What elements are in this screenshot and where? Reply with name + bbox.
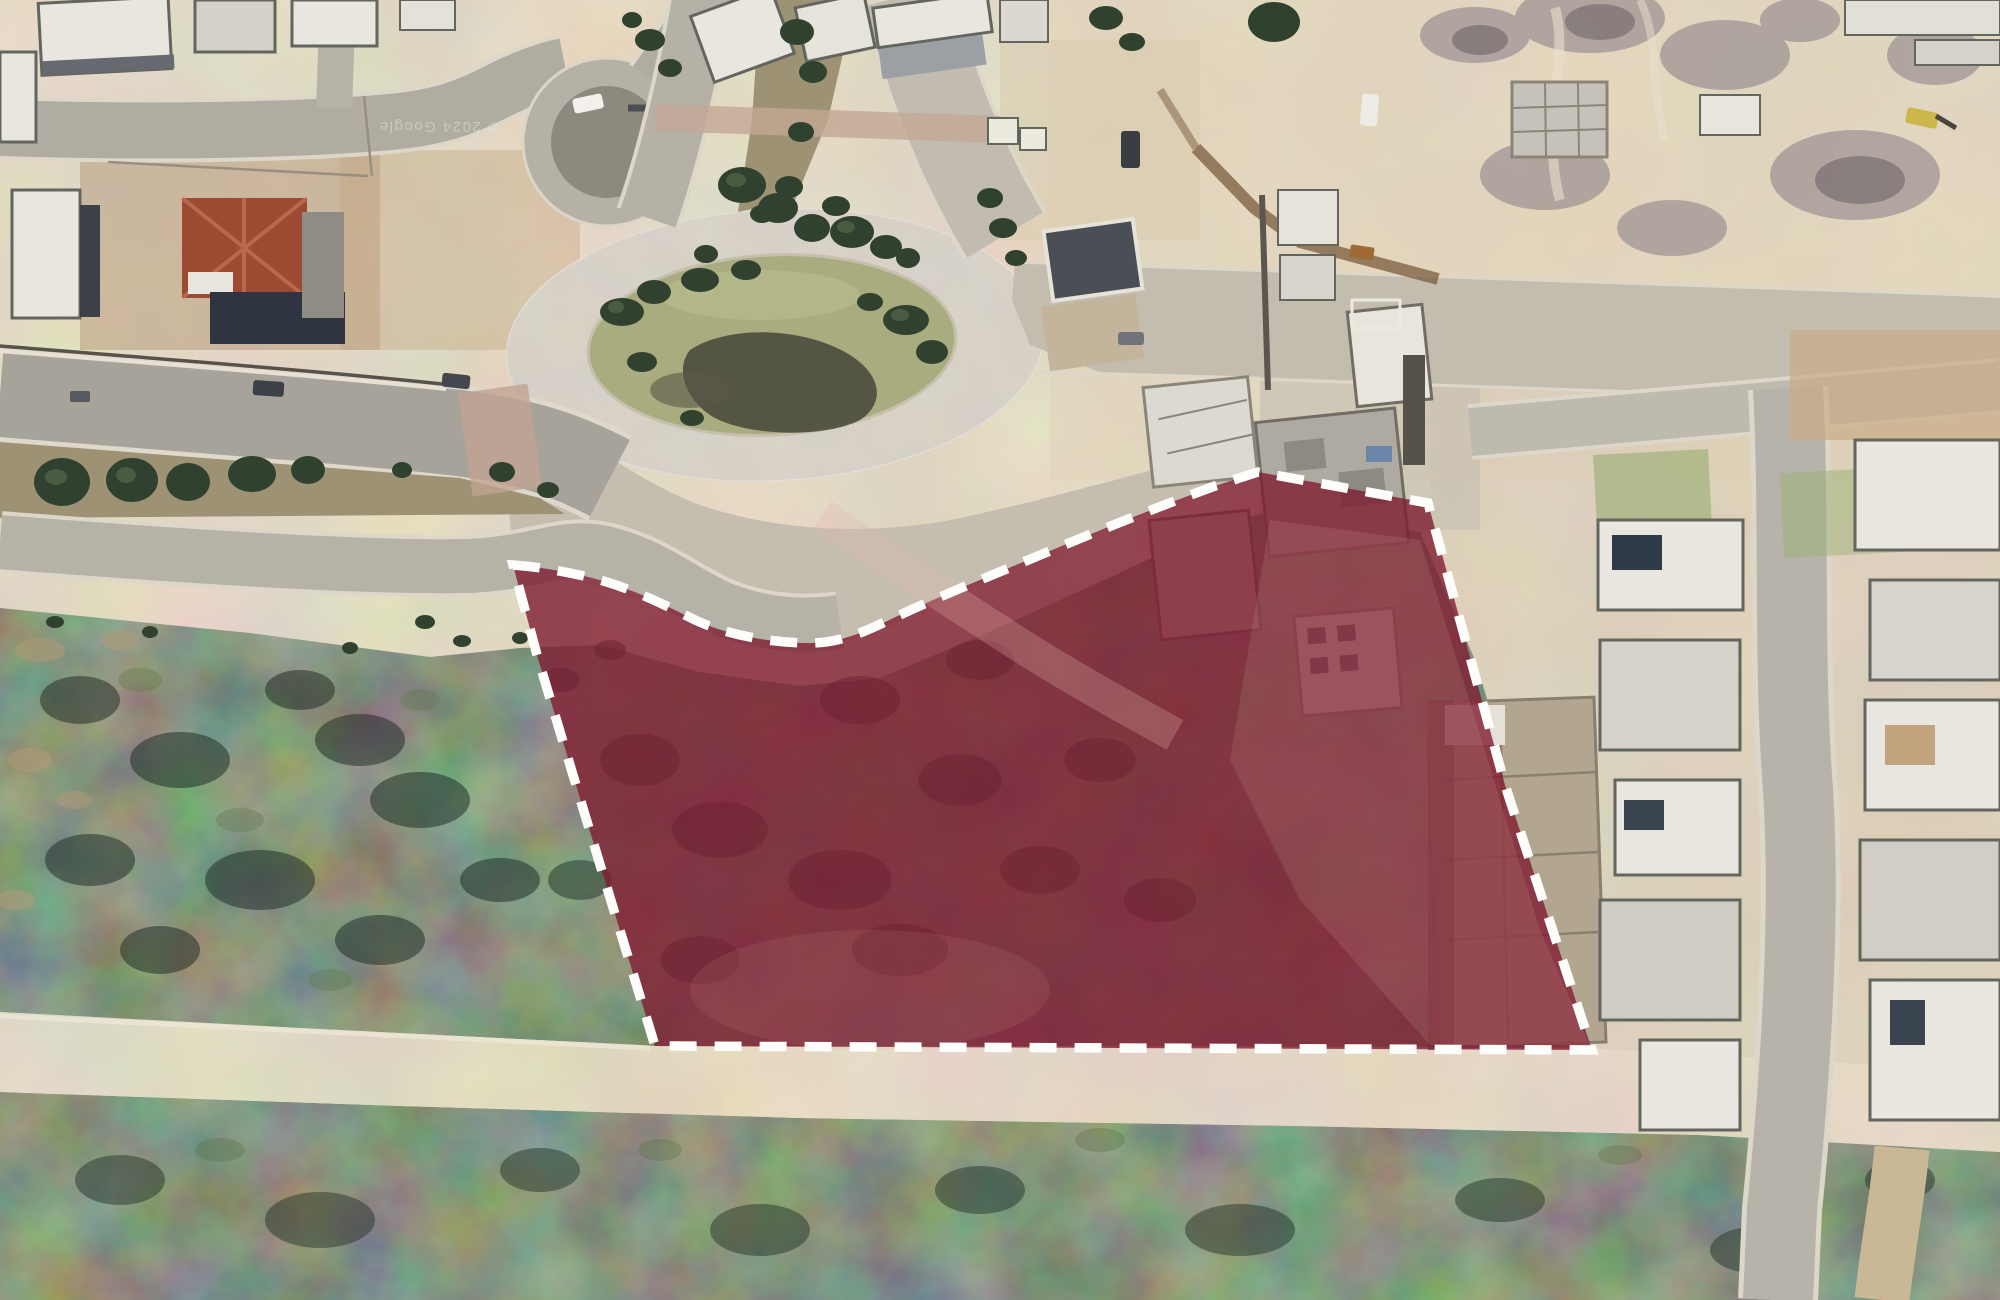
aerial-imagery: © 2024 Google [0, 0, 2000, 1300]
solar-panel [1612, 535, 1662, 570]
building [292, 0, 377, 46]
building [1278, 190, 1338, 245]
house-terrace [188, 272, 233, 294]
house-white [12, 190, 80, 318]
building [1280, 255, 1335, 300]
parcel-light-blob [690, 930, 1050, 1050]
island-dirt-patch [650, 372, 730, 408]
building [1845, 0, 2000, 35]
dirt-road-bottom-right [1882, 1148, 1902, 1300]
scaffold-shadow [1403, 355, 1425, 465]
building [1860, 840, 2000, 960]
site-sign [1366, 446, 1392, 462]
building [1000, 0, 1048, 42]
green-patch [1593, 449, 1712, 530]
small-structure [988, 118, 1018, 144]
small-structure [1020, 128, 1046, 150]
car-small [70, 391, 90, 402]
solar-panel [1624, 800, 1664, 830]
building [1855, 440, 2000, 550]
building [0, 52, 36, 142]
car-gray [1118, 332, 1144, 345]
building [195, 0, 275, 52]
house-shadow-wing [80, 205, 100, 317]
map-attribution: © 2024 Google [378, 118, 499, 135]
building [1600, 900, 1740, 1020]
building [1600, 640, 1740, 750]
building-pad [1790, 330, 2000, 440]
truck-dark [1121, 131, 1140, 168]
car-dark [252, 380, 284, 397]
building [1870, 980, 2000, 1120]
solar-panel [1890, 1000, 1925, 1045]
house-gray-wing [302, 212, 344, 318]
building [400, 0, 455, 30]
building [1915, 40, 2000, 65]
satellite-map-canvas[interactable]: © 2024 Google [0, 0, 2000, 1300]
small-structure [1700, 95, 1760, 135]
van-white [1360, 93, 1380, 126]
construction-frame [1143, 377, 1258, 487]
slab-opening [1284, 438, 1327, 472]
building [1640, 1040, 1740, 1130]
car-dark [441, 373, 470, 390]
courtyard [1885, 725, 1935, 765]
canopy-structure [1044, 219, 1143, 301]
building [1870, 580, 2000, 680]
construction-frame [1512, 82, 1607, 157]
